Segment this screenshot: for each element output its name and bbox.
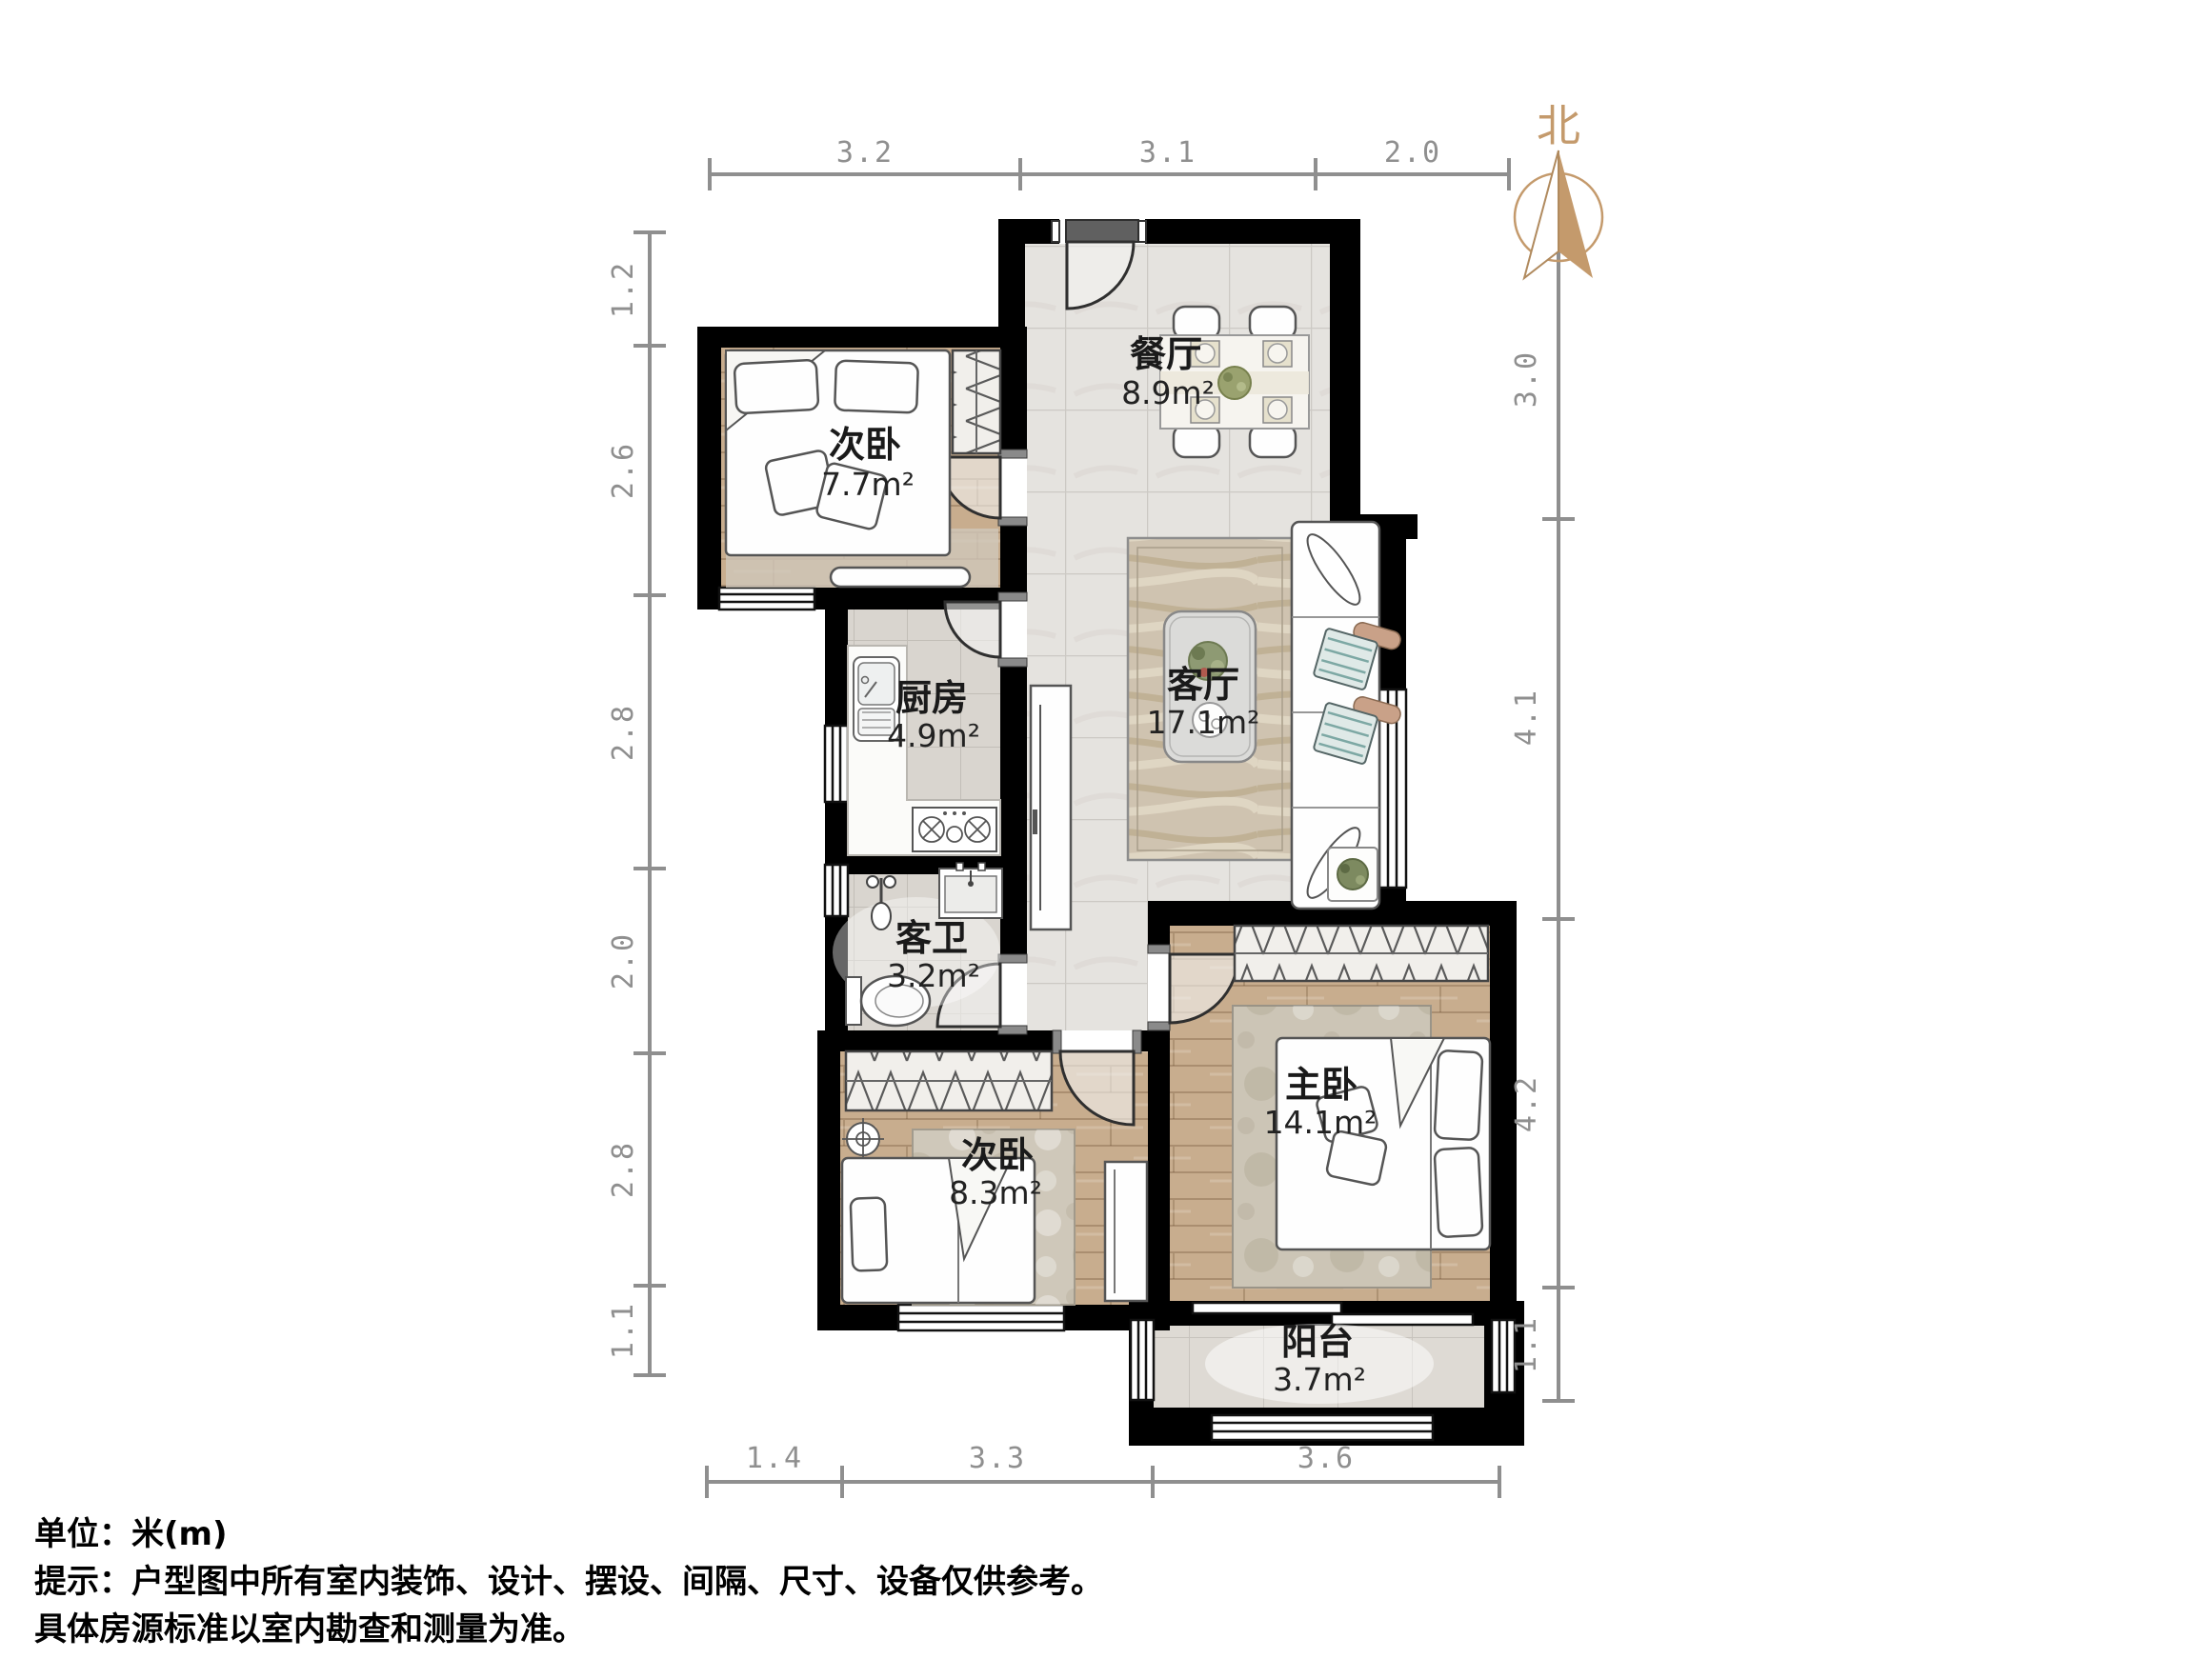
room-label-bedroom-top: 次卧 bbox=[829, 424, 901, 466]
room-label-bath: 客卫 bbox=[895, 917, 968, 959]
dim-right-2: 4.2 bbox=[1510, 1075, 1543, 1132]
compass-arrow-icon bbox=[1558, 150, 1593, 278]
dim-bottom-1: 3.3 bbox=[969, 1442, 1026, 1475]
room-area-bath: 3.2m² bbox=[887, 957, 980, 994]
dim-left-5: 1.1 bbox=[607, 1302, 640, 1359]
room-area-master: 14.1m² bbox=[1264, 1104, 1377, 1141]
dim-left-3: 2.0 bbox=[607, 932, 640, 989]
room-label-bedroom-bottom: 次卧 bbox=[961, 1134, 1034, 1176]
footer-unit-line: 单位：米(m) bbox=[34, 1515, 228, 1553]
dim-top-1: 3.1 bbox=[1139, 136, 1196, 170]
room-label-master: 主卧 bbox=[1285, 1064, 1357, 1106]
pillow bbox=[734, 360, 819, 413]
room-area-bedroom-bottom: 8.3m² bbox=[949, 1174, 1042, 1211]
dimension-right: 3.0 4.1 4.2 1.1 bbox=[1510, 238, 1575, 1401]
north-label: 北 bbox=[1537, 100, 1580, 151]
pillow bbox=[851, 1197, 888, 1270]
north-indicator: 北 bbox=[1515, 100, 1602, 278]
footer-notes: 单位：米(m) 提示：户型图中所有室内装饰、设计、摆设、间隔、尺寸、设备仅供参考… bbox=[34, 1515, 1103, 1649]
room-label-dining: 餐厅 bbox=[1130, 333, 1202, 375]
dining-chair bbox=[1250, 425, 1296, 457]
dim-bottom-0: 1.4 bbox=[746, 1442, 803, 1475]
stove-icon bbox=[913, 808, 996, 851]
dim-top-2: 2.0 bbox=[1384, 136, 1441, 170]
dim-right-1: 4.1 bbox=[1510, 689, 1543, 746]
hall-cabinet bbox=[1031, 686, 1071, 929]
dining-chair bbox=[1250, 307, 1296, 339]
bedroom-top-wardrobe bbox=[953, 350, 1000, 453]
bedroom-bottom-wardrobe bbox=[846, 1051, 1052, 1110]
dim-top-0: 3.2 bbox=[836, 136, 894, 170]
room-area-bedroom-top: 7.7m² bbox=[821, 466, 915, 503]
kitchen-window bbox=[825, 726, 848, 802]
dim-left-2: 2.8 bbox=[607, 704, 640, 761]
bedroom-bottom-window bbox=[898, 1305, 1064, 1330]
master-wardrobe bbox=[1235, 926, 1488, 981]
bedroom-top-window bbox=[719, 588, 814, 610]
balcony-left-window bbox=[1131, 1320, 1154, 1400]
bed-bench bbox=[831, 568, 970, 587]
table-plant-icon bbox=[1218, 367, 1251, 399]
dimension-left: 1.2 2.6 2.8 2.0 2.8 1.1 bbox=[607, 232, 666, 1375]
room-area-living: 17.1m² bbox=[1147, 704, 1260, 741]
pillow bbox=[1435, 1148, 1483, 1237]
dimension-bottom: 1.4 3.3 3.6 bbox=[707, 1442, 1499, 1498]
entry-door-slab bbox=[1066, 220, 1138, 242]
bath-sink-icon bbox=[939, 863, 1002, 918]
dim-left-0: 1.2 bbox=[607, 261, 640, 318]
balcony-bottom-window bbox=[1212, 1415, 1433, 1440]
dim-bottom-2: 3.6 bbox=[1297, 1442, 1355, 1475]
bath-window bbox=[825, 865, 848, 916]
pillow bbox=[835, 361, 918, 413]
room-label-kitchen: 厨房 bbox=[895, 677, 968, 719]
bedroom-bottom-desk bbox=[1105, 1162, 1147, 1301]
pillow bbox=[1435, 1050, 1483, 1140]
floor-plant-icon bbox=[1328, 848, 1377, 901]
room-area-kitchen: 4.9m² bbox=[887, 717, 980, 754]
dining-chair bbox=[1174, 425, 1219, 457]
room-label-living: 客厅 bbox=[1167, 664, 1239, 706]
footer-hint-line2: 具体房源标准以室内勘查和测量为准。 bbox=[34, 1610, 585, 1649]
dim-right-0: 3.0 bbox=[1510, 350, 1543, 408]
floorplan-canvas: 次卧 7.7m² 餐厅 8.9m² 厨房 4.9m² 客厅 17.1m² 客卫 … bbox=[0, 0, 2212, 1659]
dim-left-4: 2.8 bbox=[607, 1141, 640, 1198]
room-area-balcony: 3.7m² bbox=[1273, 1361, 1366, 1398]
dim-right-3: 1.1 bbox=[1510, 1316, 1543, 1373]
room-label-balcony: 阳台 bbox=[1281, 1321, 1354, 1363]
footer-hint-line1: 提示：户型图中所有室内装饰、设计、摆设、间隔、尺寸、设备仅供参考。 bbox=[34, 1563, 1103, 1601]
dim-left-1: 2.6 bbox=[607, 442, 640, 499]
dimension-top: 3.2 3.1 2.0 bbox=[710, 136, 1509, 190]
room-area-dining: 8.9m² bbox=[1121, 374, 1215, 411]
